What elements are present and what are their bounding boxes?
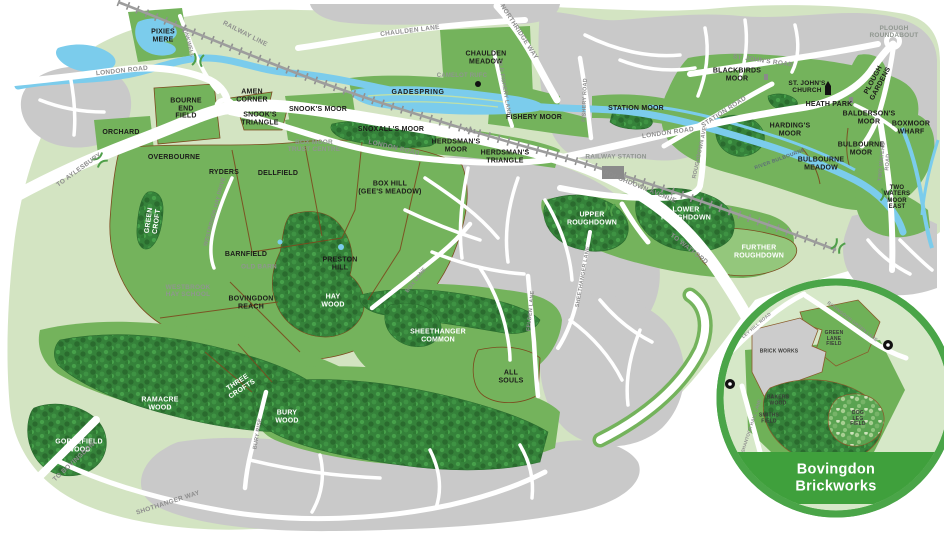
map-canvas — [0, 0, 944, 535]
boxmoor-trust-map-page: { "labels": { "pixies_mere": "PIXIES\nME… — [0, 0, 944, 535]
sports-club-marker-icon — [475, 81, 481, 87]
inset-dog-leg-field — [828, 394, 884, 446]
railway-station-icon — [602, 166, 624, 179]
building-icon — [764, 74, 768, 80]
building-icon — [849, 97, 853, 103]
